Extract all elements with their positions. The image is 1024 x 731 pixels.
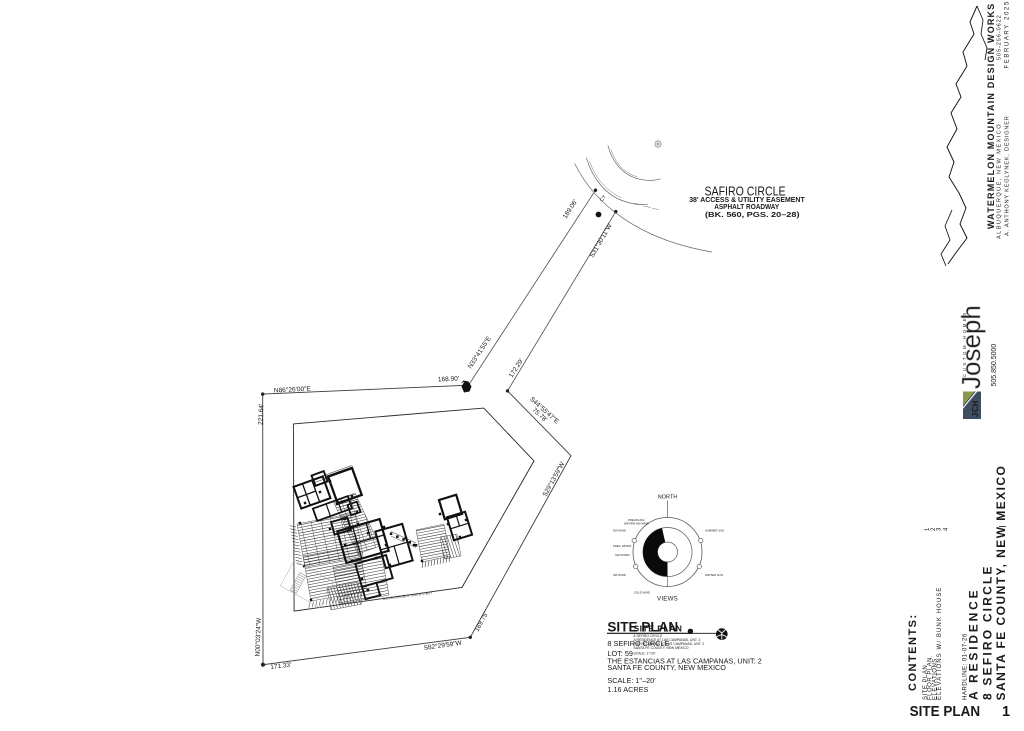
svg-text:WINTER NW WIND: WINTER NW WIND xyxy=(624,522,649,526)
svg-text:1: 1 xyxy=(925,527,931,531)
svg-text:WINTER SUN: WINTER SUN xyxy=(705,573,723,577)
svg-text:NW WIND: NW WIND xyxy=(613,529,626,533)
svg-text:1.16 ACRES: 1.16 ACRES xyxy=(607,685,648,694)
svg-text:SITE PLAN: SITE PLAN xyxy=(634,624,683,634)
svg-text:SANTA FE COUNTY, NEW MEXICO: SANTA FE COUNTY, NEW MEXICO xyxy=(607,663,726,672)
svg-text:221.64': 221.64' xyxy=(258,404,266,425)
svg-text:505.850.5000: 505.850.5000 xyxy=(991,344,998,387)
svg-text:N00°03'24"W: N00°03'24"W xyxy=(254,617,263,657)
svg-text:505-256-0622: 505-256-0622 xyxy=(997,14,1003,60)
svg-text:ALBUQUERQUE, NEW MEXICO: ALBUQUERQUE, NEW MEXICO xyxy=(997,123,1003,239)
svg-text:WATERMELON MOUNTAIN DESIGN WOR: WATERMELON MOUNTAIN DESIGN WORKS xyxy=(986,3,996,229)
svg-text:VIEWS: VIEWS xyxy=(657,596,678,603)
svg-text:PREV. WINDS: PREV. WINDS xyxy=(613,544,631,548)
svg-text:A RESIDENCE: A RESIDENCE xyxy=(967,588,981,700)
svg-text:8 SEFIRO CIRCLE: 8 SEFIRO CIRCLE xyxy=(607,639,669,648)
svg-text:SW WIND: SW WIND xyxy=(613,573,626,577)
svg-text:168.90': 168.90' xyxy=(438,375,459,383)
svg-text:SITE PLAN: SITE PLAN xyxy=(910,704,981,720)
svg-text:(BK. 560, PGS. 20–28): (BK. 560, PGS. 20–28) xyxy=(705,210,800,219)
svg-text:SCALE: 1"–20': SCALE: 1"–20' xyxy=(607,676,656,685)
svg-text:SUMMER SUN: SUMMER SUN xyxy=(705,529,724,533)
svg-text:NORTH: NORTH xyxy=(658,495,677,501)
svg-text:CUSTOM HOMES: CUSTOM HOMES xyxy=(962,310,967,377)
svg-text:SANTA FE COUNTY, NEW MEXICO: SANTA FE COUNTY, NEW MEXICO xyxy=(994,465,1008,701)
svg-text:8 SEFIRO CIRCLE: 8 SEFIRO CIRCLE xyxy=(981,564,995,700)
svg-text:ELEVATIONS W/ BUNK HOUSE: ELEVATIONS W/ BUNK HOUSE xyxy=(937,586,943,700)
svg-text:SW WINDS: SW WINDS xyxy=(615,553,630,557)
svg-text:COLD WIND: COLD WIND xyxy=(634,591,650,595)
svg-text:JCH: JCH xyxy=(971,400,980,417)
svg-text:3: 3 xyxy=(936,527,942,531)
svg-text:Joseph: Joseph xyxy=(956,305,986,389)
svg-text:FEBRUARY 2025: FEBRUARY 2025 xyxy=(1005,0,1011,68)
svg-text:A. ANTHONY KEGLYNEK, DESIGNER: A. ANTHONY KEGLYNEK, DESIGNER xyxy=(1005,115,1011,236)
svg-text:CONTENTS:: CONTENTS: xyxy=(907,613,919,691)
svg-text:4: 4 xyxy=(943,527,949,531)
svg-text:SCALE: 1'=20': SCALE: 1'=20' xyxy=(634,652,656,656)
svg-text:1: 1 xyxy=(1002,704,1010,720)
